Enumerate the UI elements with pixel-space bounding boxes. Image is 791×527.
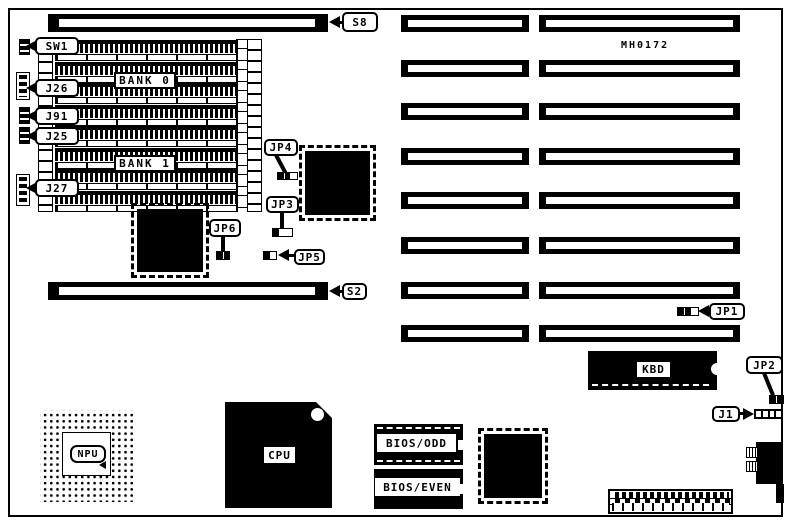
- callout-s2: S2: [342, 283, 367, 300]
- callout-jp4: JP4: [264, 139, 298, 156]
- qfp-chip-memory-ctrl: [137, 209, 203, 272]
- callout-jp5: JP5: [294, 249, 325, 265]
- isa-slot-r3-right: [539, 103, 740, 120]
- bank1-label: BANK 1: [114, 155, 176, 172]
- kbd-chip-notch: [711, 363, 723, 375]
- callout-j91: J91: [35, 107, 79, 125]
- simm-socket-row-5-body: [55, 140, 238, 147]
- jp6-pointer: [221, 236, 225, 252]
- simm-socket-row-5: [55, 126, 238, 139]
- qfp-chip-io: [484, 434, 542, 498]
- callout-j27: J27: [35, 179, 79, 197]
- callout-jp2: JP2: [746, 356, 783, 374]
- simm-socket-row-1-body: [55, 54, 238, 61]
- isa-slot-r4-left: [401, 148, 529, 165]
- kbd-chip-label: KBD: [637, 362, 670, 377]
- isa-slot-r8-right: [539, 325, 740, 342]
- isa-slot-r3-left: [401, 103, 529, 120]
- cpu-label: CPU: [264, 447, 295, 463]
- isa-slot-r2-right: [539, 60, 740, 77]
- keyboard-din-connector: [756, 442, 783, 484]
- j1-connector: [754, 409, 783, 419]
- bank0-label: BANK 0: [114, 72, 176, 89]
- qfp-chip-chipset: [305, 151, 370, 215]
- isa-slot-r2-left: [401, 60, 529, 77]
- keyboard-din-stub: [776, 484, 784, 503]
- sw1-arrow: [26, 40, 37, 52]
- j91-arrow: [26, 110, 37, 122]
- jp6-jumper: [216, 251, 230, 260]
- slot-s2: [48, 282, 328, 300]
- din-tab-lower: [746, 461, 758, 472]
- callout-j25: J25: [35, 127, 79, 145]
- jp5-arrow: [278, 249, 289, 261]
- isa-slot-r8-left: [401, 325, 529, 342]
- slot-s8: [48, 14, 328, 32]
- simm-right-rail: [247, 39, 262, 212]
- cpu-pin1-dot: [311, 408, 324, 421]
- jp1-jumper: [677, 307, 699, 316]
- isa-slot-r6-right: [539, 237, 740, 254]
- npu-socket-cavity: NPU: [62, 432, 111, 476]
- simm-socket-row-3-body: [55, 97, 238, 104]
- isa-slot-r6-left: [401, 237, 529, 254]
- simm-socket-row-4-body: [55, 119, 238, 126]
- j1-arrow: [743, 408, 754, 420]
- j26-arrow: [26, 82, 37, 94]
- j27-arrow: [26, 182, 37, 194]
- isa-slot-r1-left: [401, 15, 529, 32]
- s2-arrow: [329, 285, 340, 297]
- s8-arrow: [329, 16, 340, 28]
- din-tab-upper: [746, 447, 758, 458]
- simm-socket-row-4: [55, 105, 238, 118]
- motherboard-diagram: MH0172 BANK 0 BANK 1: [0, 0, 791, 527]
- kbd-chip-socket-line: [592, 384, 709, 386]
- isa-slot-r5-right: [539, 192, 740, 209]
- j25-arrow: [26, 130, 37, 142]
- isa-slot-r4-right: [539, 148, 740, 165]
- board-model-text: MH0172: [621, 40, 669, 51]
- callout-jp3: JP3: [266, 196, 299, 213]
- callout-j26: J26: [35, 79, 79, 97]
- callout-s8: S8: [342, 12, 378, 32]
- jp1-arrow: [698, 305, 709, 317]
- isa-slot-r1-right: [539, 15, 740, 32]
- jp2-jumper: [769, 395, 784, 404]
- isa-slot-r7-right: [539, 282, 740, 299]
- simm-socket-row-1: [55, 40, 238, 53]
- bios-even-label: BIOS/EVEN: [375, 478, 460, 496]
- simm-socket-row-7-body: [55, 183, 238, 190]
- isa-slot-r5-left: [401, 192, 529, 209]
- jp5-jumper: [263, 251, 277, 260]
- jp3-jumper: [272, 228, 293, 237]
- callout-jp6: JP6: [209, 219, 241, 237]
- jp3-pointer: [280, 212, 284, 229]
- isa-slot-r7-left: [401, 282, 529, 299]
- npu-pin1-arrow: [95, 461, 106, 469]
- power-connector: [608, 489, 733, 514]
- npu-socket: NPU: [40, 410, 133, 502]
- callout-jp1: JP1: [709, 303, 745, 320]
- callout-j1: J1: [712, 406, 740, 422]
- jp4-jumper: [277, 172, 298, 180]
- callout-sw1: SW1: [35, 37, 79, 55]
- bios-odd-label: BIOS/ODD: [377, 434, 456, 452]
